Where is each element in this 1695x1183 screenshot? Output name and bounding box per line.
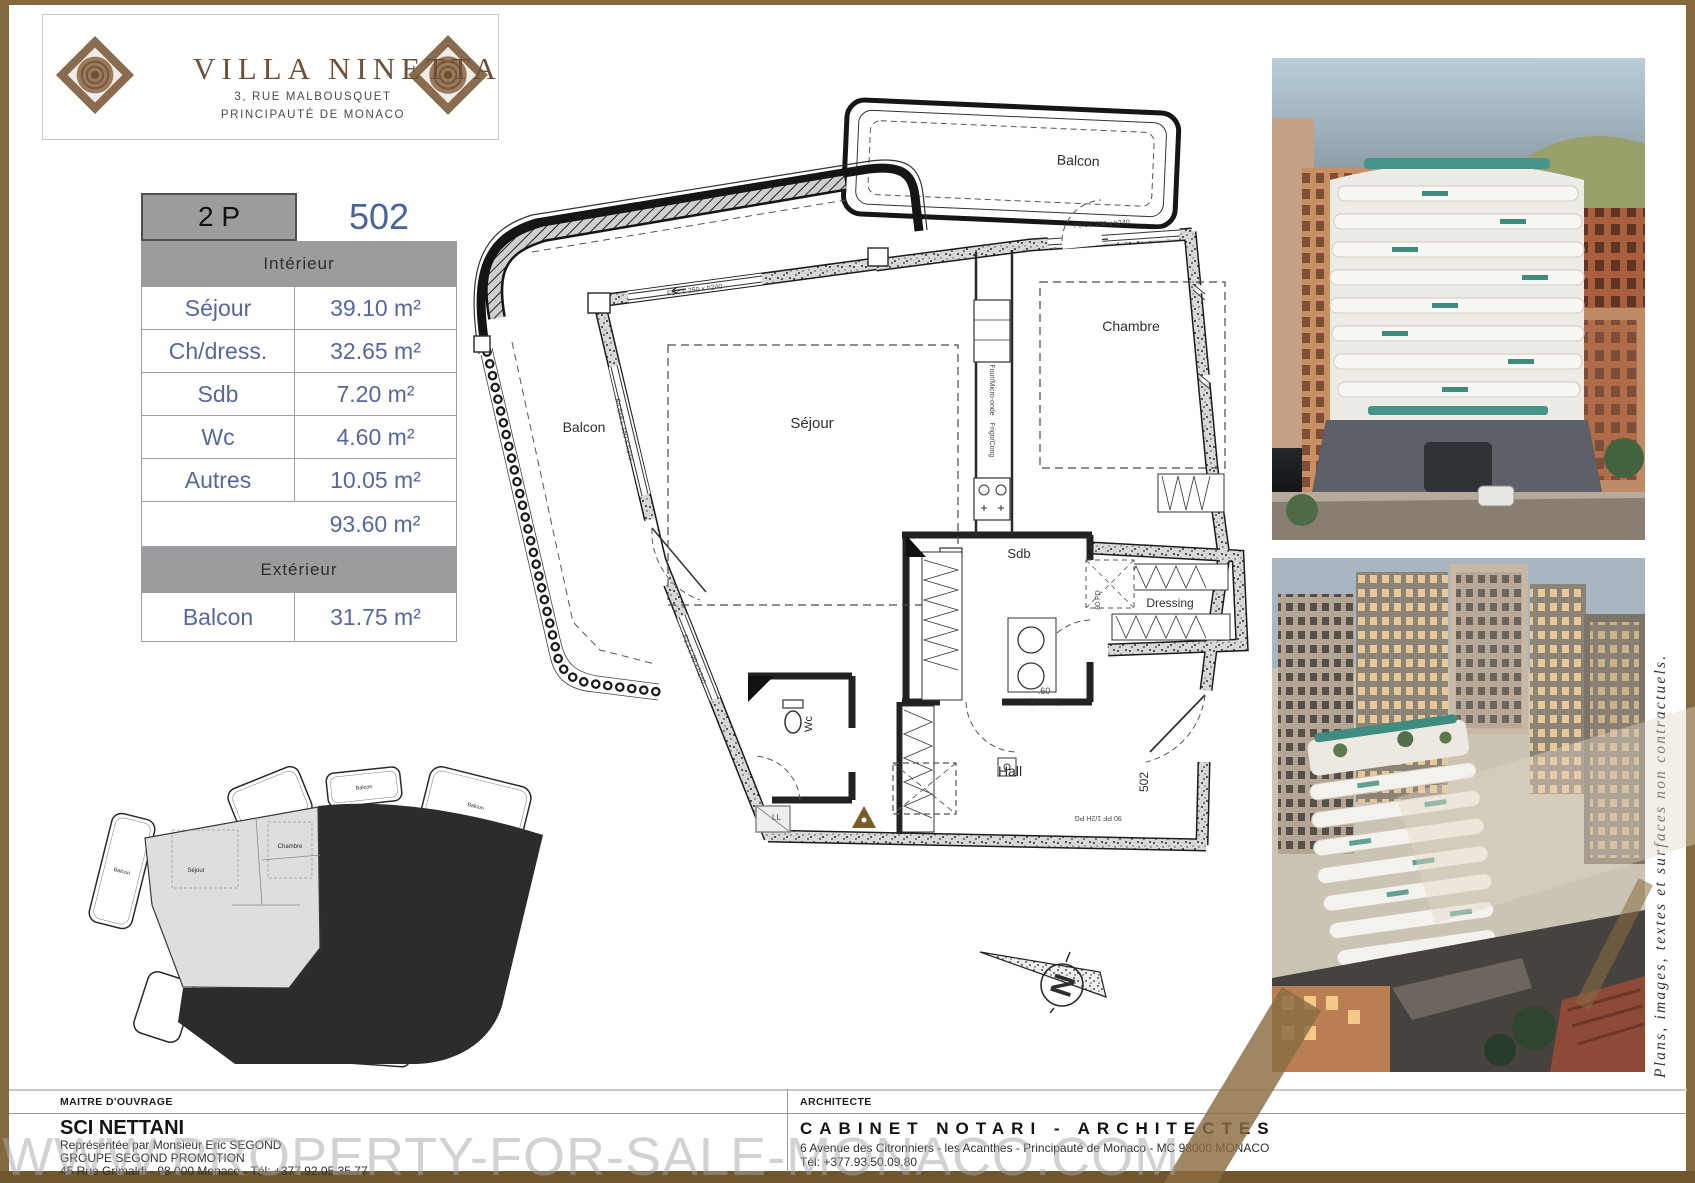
dressing-label: Dressing [1146, 596, 1193, 610]
table-row: Séjour 39.10 m² [142, 287, 456, 330]
owner-section-label: MAITRE D'OUVRAGE [60, 1096, 173, 1108]
balcony-left-label: Balcon [563, 419, 606, 435]
website-watermark: WWW.PROPERTY-FOR-SALE-MONACO.COM [2, 1126, 1180, 1183]
row-label: Balcon [142, 593, 295, 641]
balcony-top-outline: Balcon [843, 99, 1180, 227]
footer-top-rule [9, 1089, 1687, 1091]
plan-sheet: VILLA NINETTA 3, RUE MALBOUSQUET PRINCIP… [0, 0, 1695, 1183]
sdb-label: Sdb [1007, 546, 1030, 561]
residence-address-line2: PRINCIPAUTÉ DE MONACO [193, 109, 433, 121]
kitchen-annotation: Four/Micro-onde [988, 364, 995, 415]
frame-top-bar [0, 0, 1695, 5]
sejour-label: Séjour [790, 415, 833, 432]
table-row: Autres 10.05 m² [142, 459, 456, 502]
architect-section-label: ARCHITECTE [800, 1096, 872, 1108]
door-annotation: 90 PF 1/2H PG [1074, 814, 1121, 821]
table-row: Ch/dress. 32.65 m² [142, 330, 456, 373]
sejour-dashed-outline [668, 345, 958, 605]
windows [611, 230, 1180, 700]
building-photo-day [1272, 58, 1645, 540]
table-total-row: 93.60 m² [142, 502, 456, 547]
unit-surface-table: 2 P 502 Intérieur Séjour 39.10 m² Ch/dre… [141, 193, 457, 642]
table-row: Sdb 7.20 m² [142, 373, 456, 416]
row-label: Wc [142, 416, 295, 458]
row-label: Ch/dress. [142, 330, 295, 372]
residence-title: VILLA NINETTA [193, 51, 433, 87]
residence-address-line1: 3, RUE MALBOUSQUET [193, 91, 433, 103]
row-label: Sdb [142, 373, 295, 415]
table-row: Wc 4.60 m² [142, 416, 456, 459]
key-plan: Séjour Chambre Balcon Balcon Balcon Balc… [80, 685, 560, 1080]
interior-section-header: Intérieur [141, 241, 457, 287]
key-plan-sejour: Séjour [187, 868, 204, 874]
key-plan-chambre: Chambre [278, 844, 303, 850]
logo-diamond-left-icon [49, 29, 141, 121]
wc-fixtures [748, 676, 876, 832]
balcony-left-outline: Balcon [474, 160, 927, 700]
washer-annotation: LL [772, 813, 781, 822]
dimension-label: .60 [1038, 686, 1051, 696]
kitchen-annotation: Frigo/Cong [988, 423, 995, 458]
balcony-top-label: Balcon [1057, 151, 1100, 169]
footer-mid-rule [9, 1113, 1687, 1114]
north-compass-icon: N [890, 848, 1150, 1013]
unit-type-cell: 2 P [141, 193, 297, 241]
row-label: Autres [142, 459, 295, 501]
wc-label: Wc [803, 716, 815, 732]
frame-right-bar [1686, 0, 1695, 1183]
row-label: Séjour [142, 287, 295, 329]
chambre-label: Chambre [1102, 318, 1160, 334]
exterior-section-header: Extérieur [141, 547, 457, 593]
hall-label: Hall [998, 763, 1022, 779]
table-row: Balcon 31.75 m² [142, 593, 456, 642]
key-plan-balcon: Balcon [355, 1042, 372, 1048]
key-plan-unit-502: Séjour Chambre [145, 807, 320, 988]
frame-left-bar [0, 0, 9, 1183]
unit-number-on-plan: 502 [1137, 772, 1151, 792]
door-annotation: 80 PD [1095, 590, 1102, 609]
